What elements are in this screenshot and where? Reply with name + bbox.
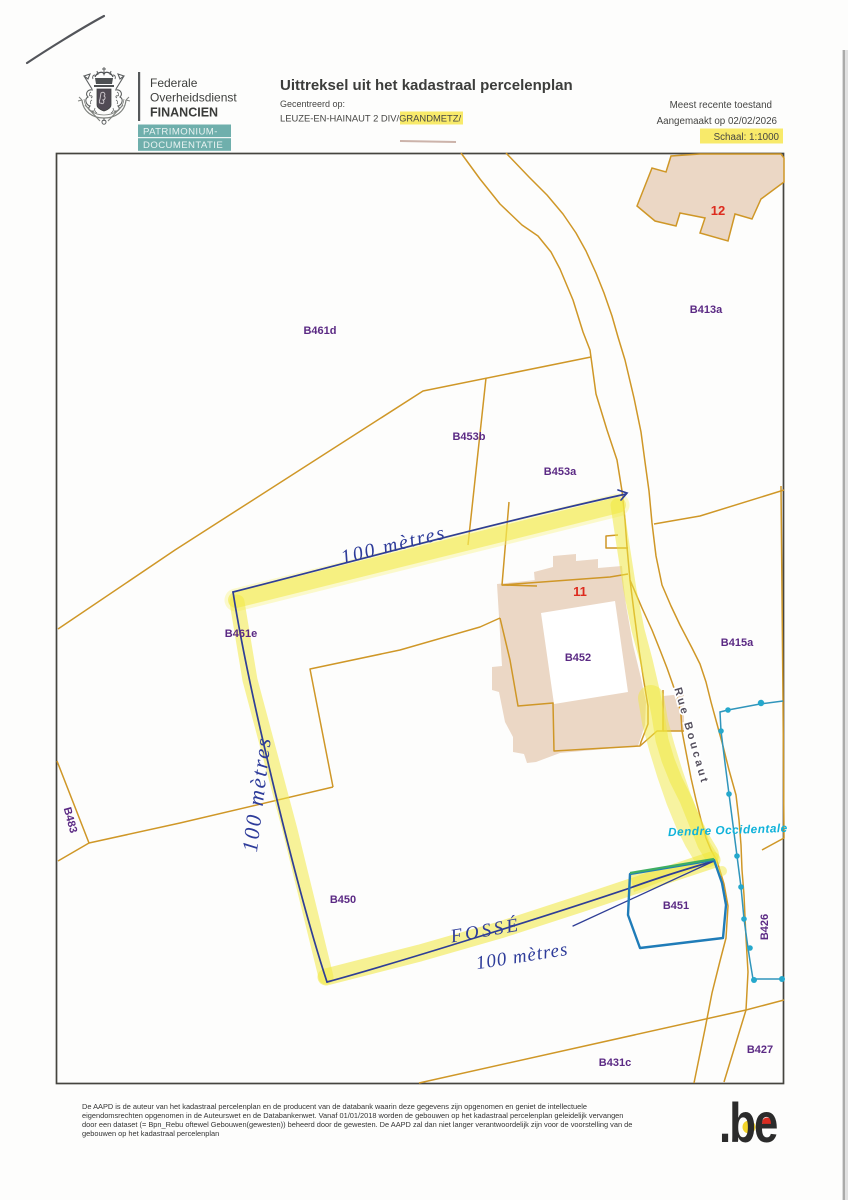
svg-text:B453a: B453a	[544, 466, 577, 478]
svg-text:Overheidsdienst: Overheidsdienst	[150, 91, 237, 105]
svg-text:gebouwen op het kadastraal per: gebouwen op het kadastraal percelenplan	[82, 1129, 219, 1138]
svg-text:eigendomsrechten opgenomen in: eigendomsrechten opgenomen in de Auteurs…	[82, 1111, 623, 1120]
svg-text:door een dataset (= Bpn_Rebu o: door een dataset (= Bpn_Rebu oftewel Geb…	[82, 1120, 632, 1129]
svg-text:LEUZE-EN-HAINAUT 2 DIV/GRANDME: LEUZE-EN-HAINAUT 2 DIV/GRANDMETZ/	[280, 113, 461, 124]
svg-text:FINANCIEN: FINANCIEN	[150, 106, 218, 120]
svg-text:Gecentreerd op:: Gecentreerd op:	[280, 99, 345, 109]
svg-text:Meest recente toestand: Meest recente toestand	[670, 100, 772, 111]
svg-text:B415a: B415a	[721, 637, 754, 649]
svg-text:B452: B452	[565, 652, 591, 664]
svg-text:PATRIMONIUM-: PATRIMONIUM-	[143, 126, 218, 137]
svg-text:B427: B427	[747, 1044, 773, 1056]
svg-text:B461e: B461e	[225, 628, 257, 640]
svg-text:B431c: B431c	[599, 1057, 631, 1069]
svg-text:B461d: B461d	[303, 325, 336, 337]
svg-text:.be: .be	[719, 1092, 777, 1154]
svg-text:B450: B450	[330, 894, 356, 906]
svg-text:100 mètres: 100 mètres	[237, 735, 276, 854]
svg-text:Uittreksel uit het kadastraal: Uittreksel uit het kadastraal percelenpl…	[280, 77, 573, 94]
svg-text:Dendre Occidentale: Dendre Occidentale	[668, 821, 788, 839]
svg-text:Schaal: 1:1000: Schaal: 1:1000	[714, 132, 780, 143]
svg-text:Aangemaakt op 02/02/2026: Aangemaakt op 02/02/2026	[657, 116, 778, 127]
svg-text:100 mètres: 100 mètres	[474, 939, 569, 974]
svg-text:B413a: B413a	[690, 304, 723, 316]
svg-text:B453b: B453b	[452, 431, 485, 443]
svg-text:11: 11	[573, 584, 587, 599]
svg-text:DOCUMENTATIE: DOCUMENTATIE	[143, 140, 223, 151]
svg-text:B451: B451	[663, 900, 689, 912]
svg-text:B426: B426	[759, 914, 771, 940]
svg-text:12: 12	[711, 203, 725, 218]
svg-text:De AAPD is de auteur van het k: De AAPD is de auteur van het kadastraal …	[82, 1102, 587, 1111]
svg-text:Federale: Federale	[150, 76, 198, 90]
